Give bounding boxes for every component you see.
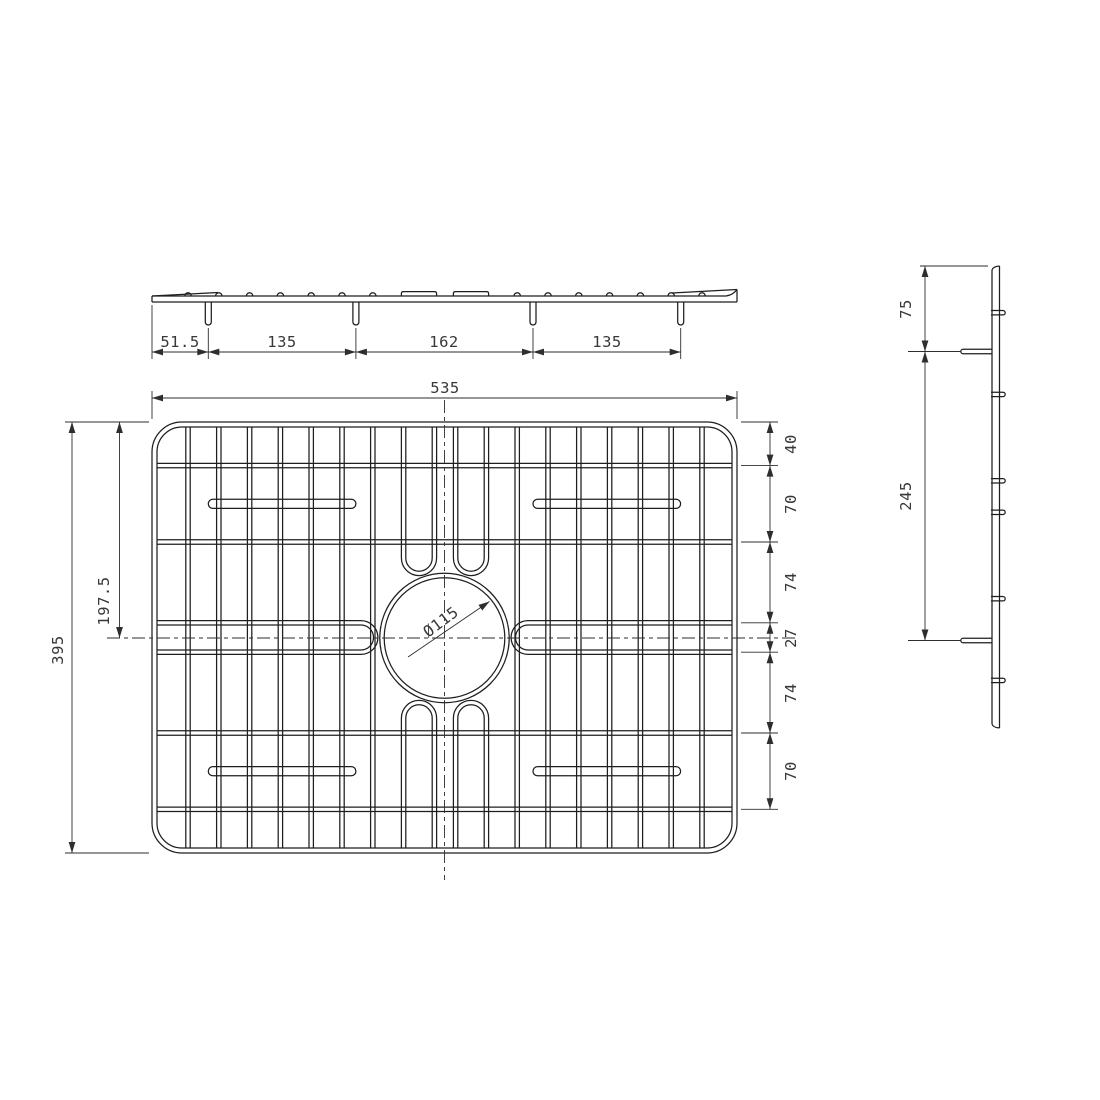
- side-elevation-view: [961, 266, 1005, 728]
- plan-view-centerlines: [107, 400, 795, 880]
- plan-dim-width: 535: [430, 379, 460, 397]
- side-elevation-dimensions: [908, 266, 988, 641]
- plan-right-dim-70-bottom: 70: [782, 761, 800, 781]
- plan-right-dim-40: 40: [782, 434, 800, 454]
- plan-view-dimensions: [65, 391, 778, 853]
- front-elevation-view: [152, 290, 737, 326]
- plan-right-dim-74-top: 74: [782, 572, 800, 592]
- plan-view-wire-hairpins: [401, 427, 488, 848]
- plan-right-dim-70-top: 70: [782, 494, 800, 514]
- plan-dim-center-offset: 197.5: [95, 576, 113, 625]
- sink-grid-drawing: [0, 0, 1100, 1100]
- front-dim-135-left: 135: [267, 333, 297, 351]
- plan-right-dim-74-bottom: 74: [782, 683, 800, 703]
- technical-drawing-sheet: 51.5 135 162 135 535 395 197.5 Ø115 40 7…: [0, 0, 1100, 1100]
- front-dim-162: 162: [429, 333, 459, 351]
- side-dim-75: 75: [897, 299, 915, 319]
- front-dim-51-5: 51.5: [160, 333, 199, 351]
- plan-view-vertical-wires: [186, 427, 704, 848]
- plan-dim-height: 395: [49, 635, 67, 665]
- front-dim-135-right: 135: [592, 333, 622, 351]
- side-dim-245: 245: [897, 481, 915, 511]
- plan-right-dim-27: 27: [782, 628, 800, 648]
